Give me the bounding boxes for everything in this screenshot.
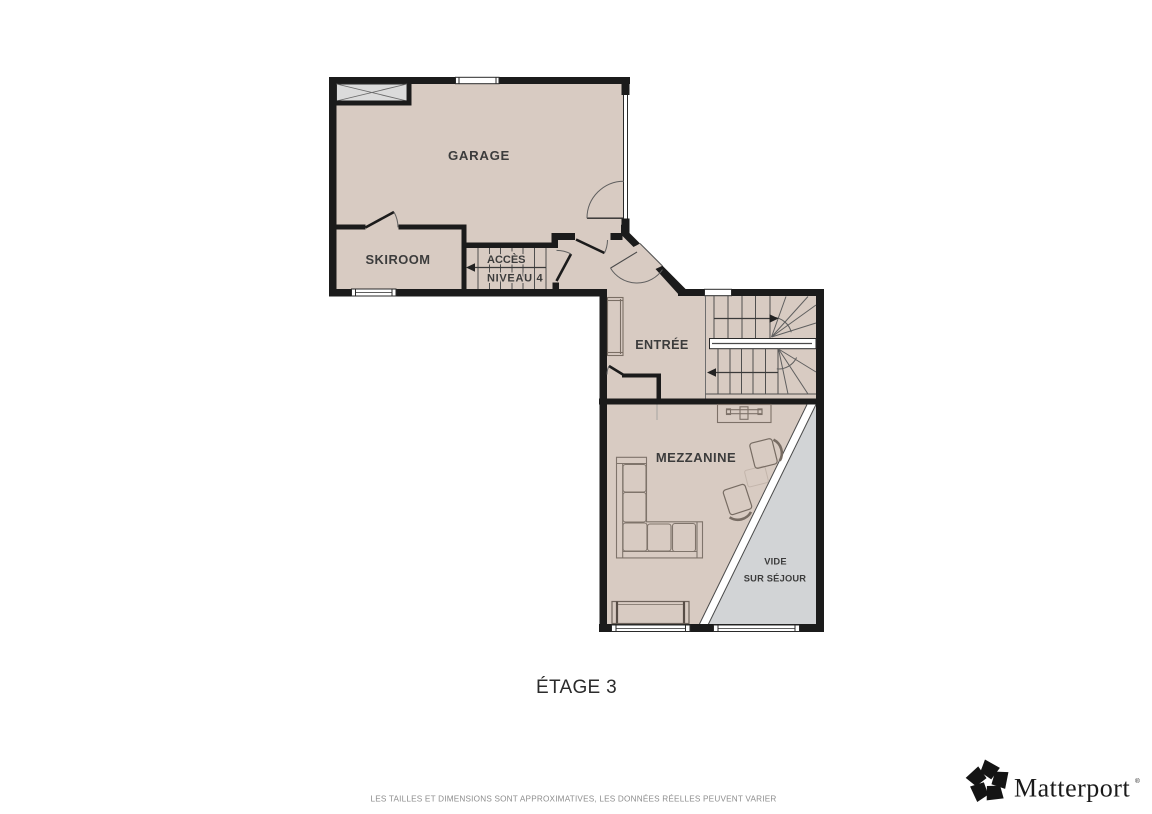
svg-text:GARAGE: GARAGE [448, 148, 510, 163]
svg-text:ÉTAGE 3: ÉTAGE 3 [536, 677, 617, 698]
svg-text:ENTRÉE: ENTRÉE [635, 337, 688, 352]
svg-text:MEZZANINE: MEZZANINE [656, 450, 736, 465]
svg-text:VIDE: VIDE [764, 556, 787, 566]
svg-text:®: ® [1135, 777, 1140, 785]
svg-text:SKIROOM: SKIROOM [365, 252, 430, 267]
svg-text:ACCÈS: ACCÈS [487, 253, 526, 266]
svg-text:NIVEAU 4: NIVEAU 4 [487, 273, 544, 285]
svg-text:Matterport: Matterport [1014, 774, 1130, 803]
svg-text:LES TAILLES ET DIMENSIONS SONT: LES TAILLES ET DIMENSIONS SONT APPROXIMA… [371, 793, 777, 803]
svg-text:SUR SÉJOUR: SUR SÉJOUR [744, 574, 807, 584]
